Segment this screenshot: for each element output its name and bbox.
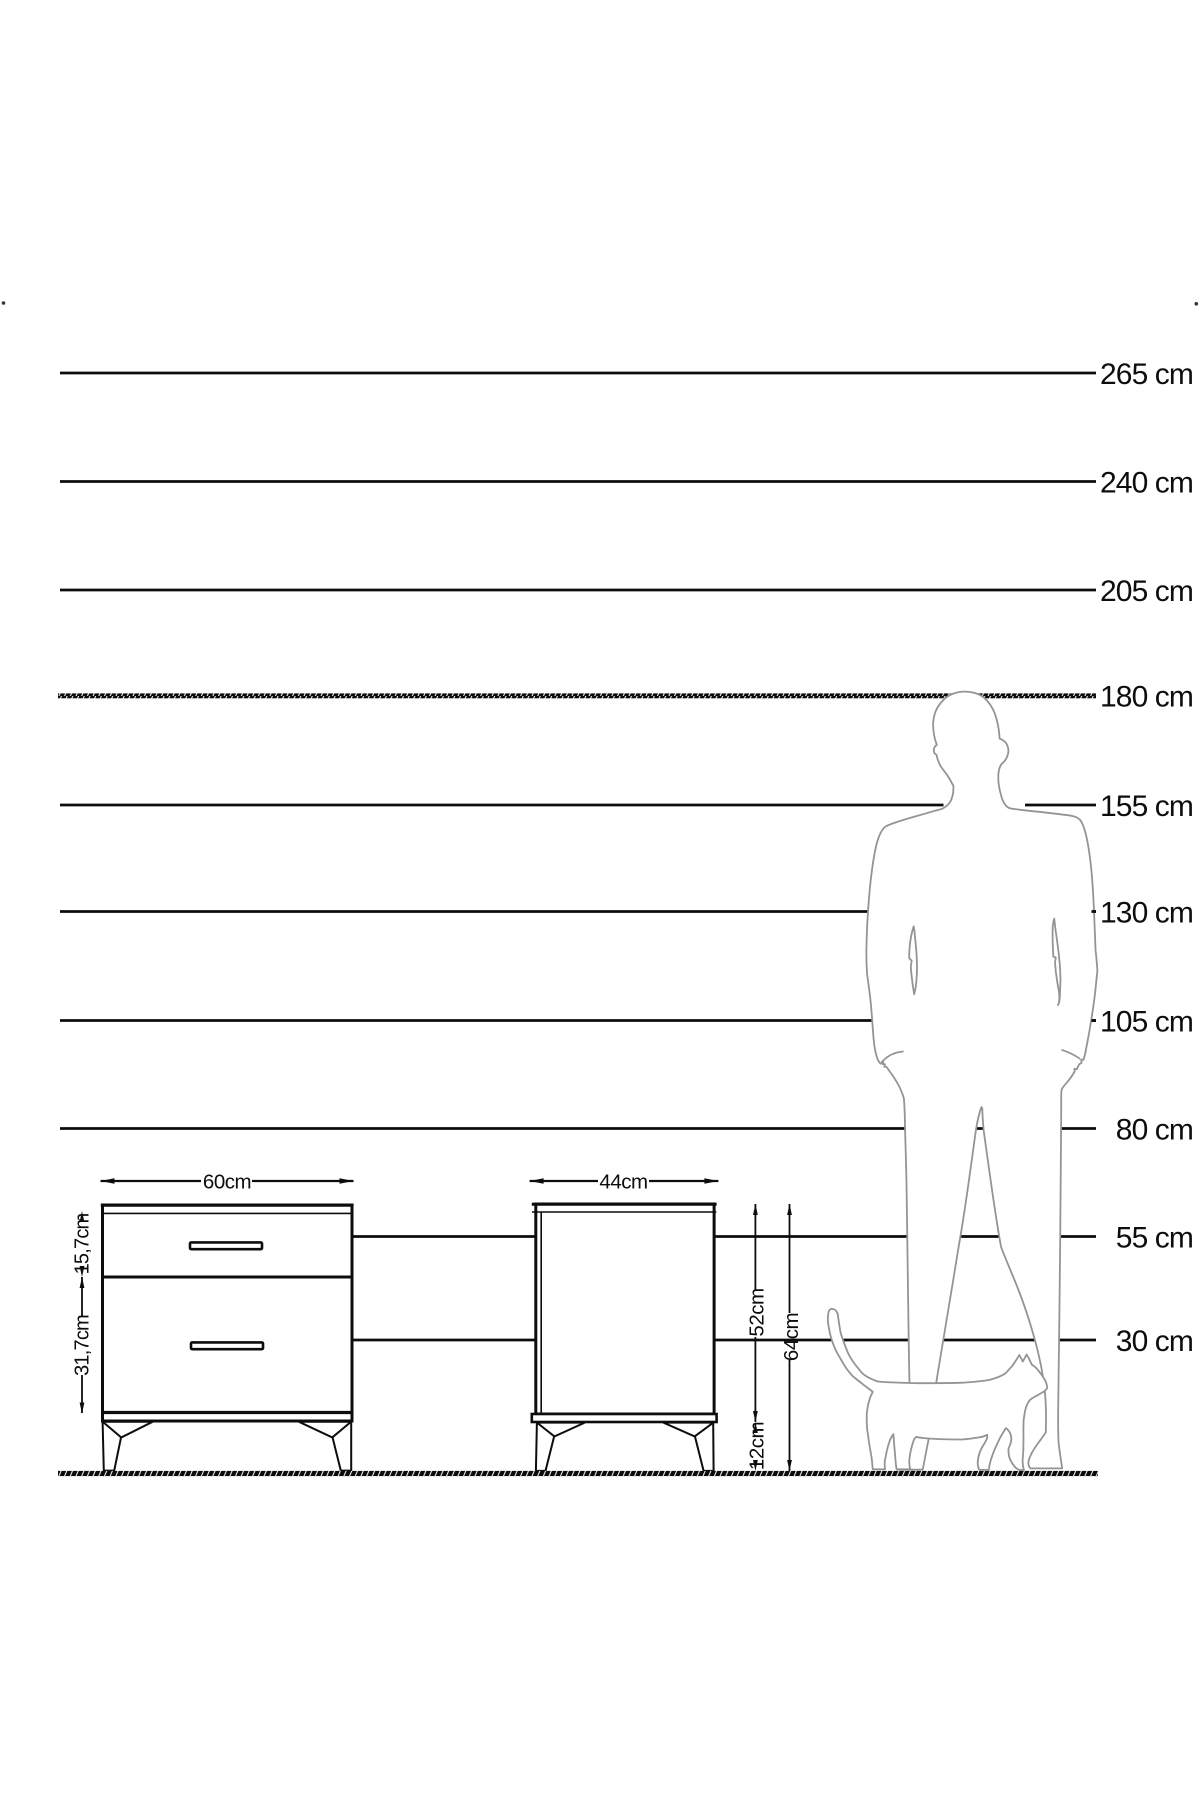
svg-text:52cm: 52cm bbox=[746, 1288, 769, 1336]
svg-text:60cm: 60cm bbox=[203, 1171, 251, 1194]
svg-text:12cm: 12cm bbox=[746, 1422, 769, 1470]
svg-text:205 cm: 205 cm bbox=[1100, 575, 1193, 608]
svg-text:80 cm: 80 cm bbox=[1116, 1114, 1193, 1147]
svg-text:155 cm: 155 cm bbox=[1100, 790, 1193, 823]
svg-text:55 cm: 55 cm bbox=[1116, 1222, 1193, 1255]
svg-text:15,7cm: 15,7cm bbox=[72, 1213, 94, 1274]
svg-text:30 cm: 30 cm bbox=[1116, 1325, 1193, 1358]
svg-text:64cm: 64cm bbox=[780, 1313, 803, 1361]
svg-text:105 cm: 105 cm bbox=[1100, 1006, 1193, 1039]
svg-text:31,7cm: 31,7cm bbox=[72, 1315, 94, 1376]
svg-text:180 cm: 180 cm bbox=[1100, 681, 1193, 714]
svg-text:265 cm: 265 cm bbox=[1100, 358, 1193, 391]
svg-text:130 cm: 130 cm bbox=[1100, 897, 1193, 930]
svg-text:240 cm: 240 cm bbox=[1100, 467, 1193, 500]
svg-text:44cm: 44cm bbox=[599, 1171, 647, 1194]
